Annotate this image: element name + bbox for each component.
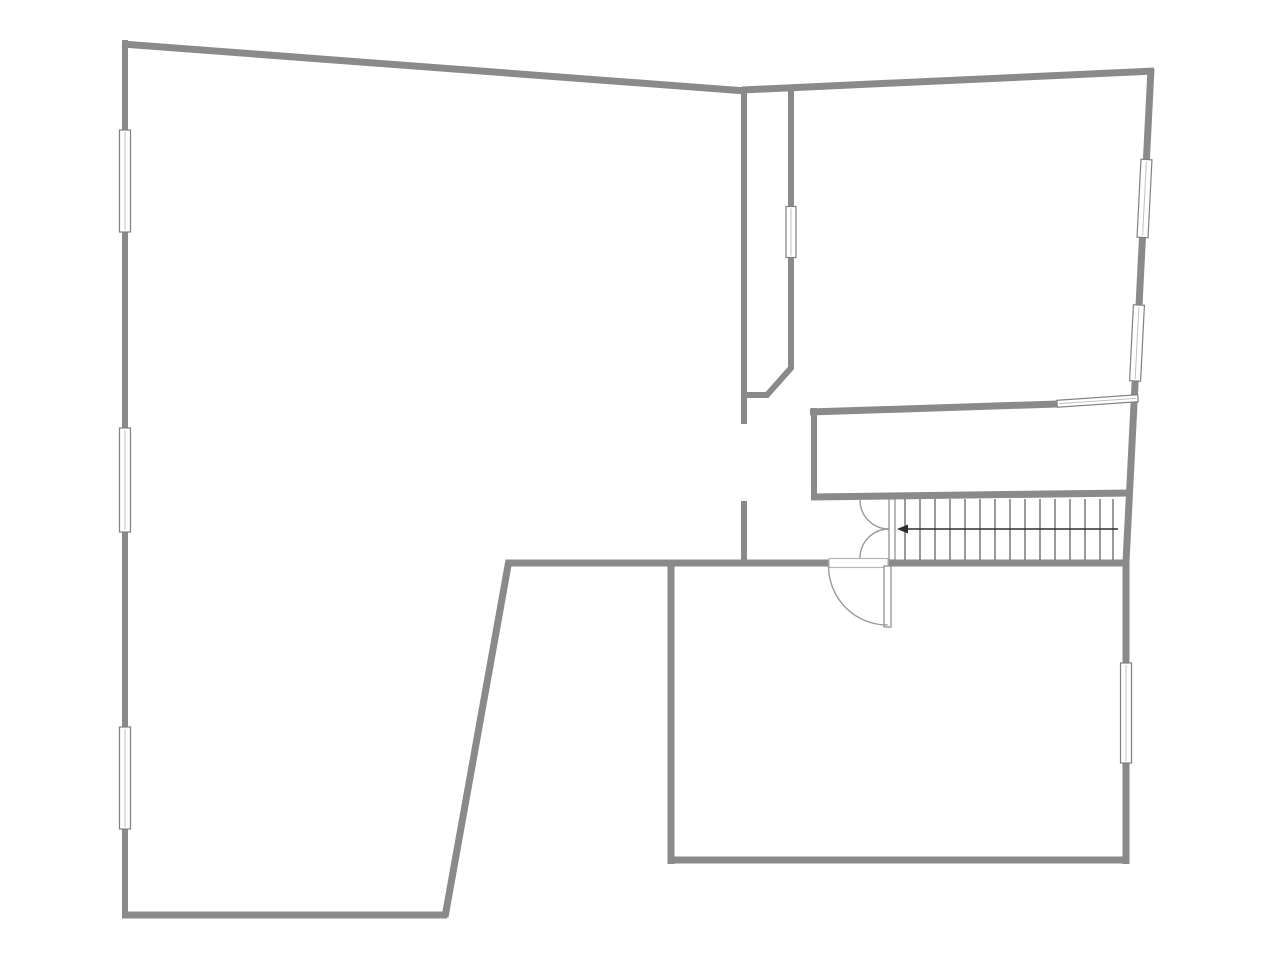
room-door-leaf — [884, 566, 891, 627]
floor-plan-canvas — [0, 0, 1280, 960]
window-left-1 — [120, 130, 131, 232]
room-door-opening — [829, 559, 888, 568]
stairs-top-wall — [811, 493, 1131, 497]
window-left-2 — [120, 428, 131, 532]
window-right-3 — [1121, 663, 1132, 763]
window-left-3 — [120, 727, 131, 829]
stair-edge-double-doors-closed — [889, 499, 895, 560]
window-hallway — [786, 207, 796, 258]
floor-plan — [0, 0, 1280, 960]
plan-background — [0, 0, 1280, 960]
